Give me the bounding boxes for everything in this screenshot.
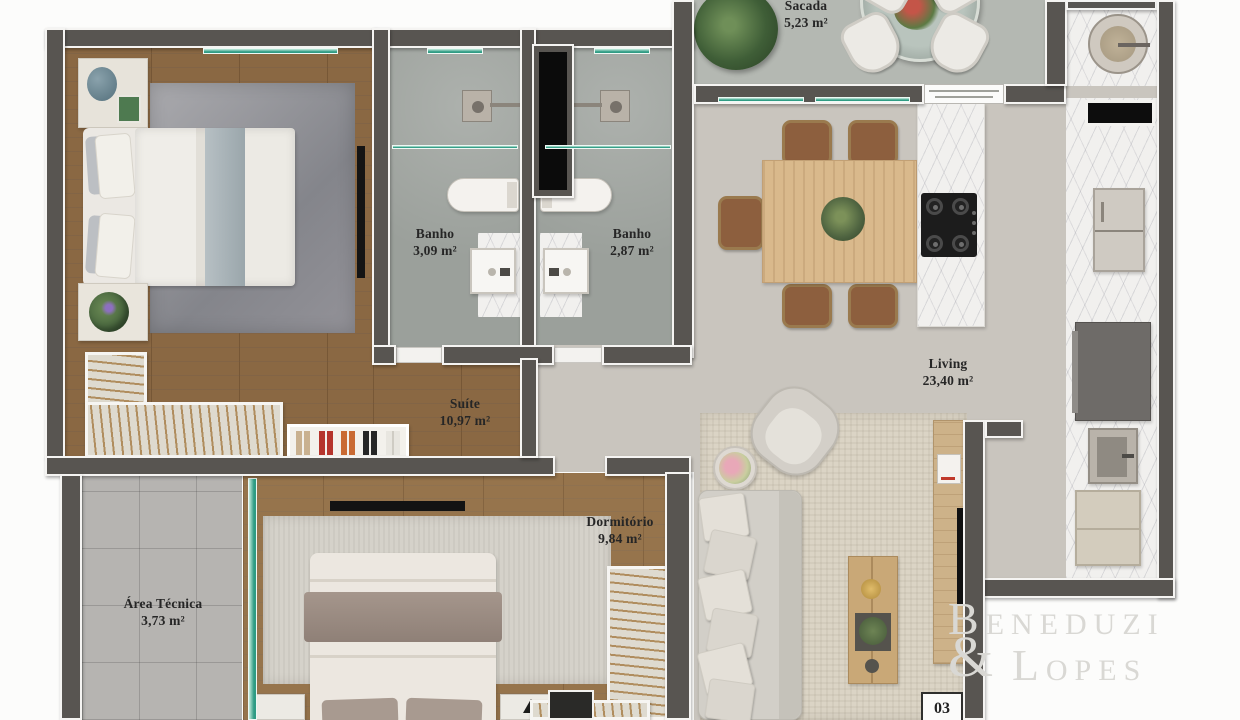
- faucet-icon: [1118, 43, 1150, 47]
- dining-chair: [718, 196, 764, 250]
- burner-icon: [952, 235, 969, 252]
- room-area: 9,84 m²: [565, 531, 675, 548]
- decor-item: [865, 659, 879, 673]
- cooktop: [921, 193, 977, 257]
- washer: [1075, 490, 1141, 566]
- room-name: Área Técnica: [124, 596, 203, 611]
- room-name: Living: [929, 356, 968, 371]
- dining-chair: [782, 284, 832, 328]
- room-name: Banho: [613, 226, 652, 241]
- pillow: [406, 698, 483, 720]
- shoes: [363, 431, 377, 455]
- wall-segment: [665, 472, 691, 720]
- room-label-sacada: Sacada 5,23 m²: [756, 0, 856, 32]
- wall-segment: [1045, 0, 1067, 86]
- closet-hangers-bottom: [85, 402, 283, 458]
- knob: [972, 231, 976, 235]
- shower-glass: [392, 145, 518, 149]
- burner-icon: [952, 198, 969, 215]
- faucet-icon: [549, 268, 559, 276]
- shaft-opening: [539, 52, 567, 190]
- suite-nightstand-bottom: [78, 283, 148, 341]
- balcony-sliding-door: [924, 84, 1004, 104]
- closet-hangers-left: [85, 352, 147, 408]
- drain: [563, 268, 571, 276]
- shower-rose: [610, 101, 622, 113]
- window-glass: [203, 48, 338, 54]
- wall-segment: [520, 358, 538, 458]
- unit-number: 03: [934, 700, 950, 717]
- plant-icon: [859, 617, 887, 645]
- shoes: [319, 431, 333, 455]
- room-label-suite: Suíte 10,97 m²: [415, 396, 515, 430]
- handle: [1101, 202, 1104, 222]
- flower-side-table: [713, 446, 757, 490]
- pillow: [322, 698, 399, 720]
- shoes: [386, 431, 400, 455]
- room-area: 23,40 m²: [898, 373, 998, 390]
- room-area: 3,09 m²: [385, 243, 485, 260]
- faucet-icon: [1122, 454, 1134, 458]
- room-label-banho1: Banho 3,09 m²: [385, 226, 485, 260]
- room-area: 3,73 m²: [102, 613, 224, 630]
- pillow: [94, 213, 135, 280]
- room-name: Banho: [416, 226, 455, 241]
- room-label-dormitorio: Dormitório 9,84 m²: [565, 514, 675, 548]
- suite-nightstand-top: [78, 58, 148, 128]
- flowers-icon: [719, 452, 751, 484]
- window-glass: [594, 48, 650, 54]
- shower-arm: [572, 103, 602, 107]
- shoes: [341, 431, 355, 455]
- fridge-handle: [1072, 331, 1078, 413]
- shower-glass: [545, 145, 671, 149]
- laundry-sink: [1088, 428, 1138, 484]
- kitchen-island: [917, 103, 985, 327]
- armchair-cushion: [757, 400, 830, 473]
- round-sink: [1088, 14, 1148, 74]
- wall-segment: [1157, 0, 1175, 598]
- door-opening: [396, 347, 442, 363]
- sofa-back: [779, 491, 801, 719]
- dining-chair: [848, 284, 898, 328]
- window-glass: [718, 97, 804, 102]
- room-area: 5,23 m²: [756, 15, 856, 32]
- shower-arm: [490, 103, 520, 107]
- wall-segment: [372, 345, 396, 365]
- knob: [972, 211, 976, 215]
- suite-tv: [357, 146, 365, 278]
- room-label-banho2: Banho 2,87 m²: [582, 226, 682, 260]
- brand-line2: & Lopes: [948, 644, 1208, 688]
- wall-segment: [672, 0, 694, 358]
- plant-tray: [855, 613, 891, 651]
- plant-icon: [821, 197, 865, 241]
- knob: [972, 221, 976, 225]
- duvet-fold: [310, 655, 496, 658]
- room-name: Suíte: [450, 396, 480, 411]
- wall-segment: [372, 28, 390, 358]
- door-line: [1077, 528, 1139, 530]
- door-split: [1095, 230, 1143, 232]
- room-area: 10,97 m²: [415, 413, 515, 430]
- shower-head: [600, 90, 630, 122]
- burner-icon: [926, 198, 943, 215]
- wall-segment: [45, 456, 555, 476]
- media-box-red-dot: [941, 477, 955, 480]
- refrigerator: [1075, 322, 1151, 421]
- bedroom-bed: [310, 553, 496, 720]
- bedroom-nightstand: [250, 694, 305, 720]
- window-glass: [815, 97, 910, 102]
- room-name: Dormitório: [586, 514, 653, 529]
- brand-logo: Beneduzi & Lopes: [948, 596, 1208, 688]
- toilet-tank: [507, 182, 517, 208]
- wall-segment: [602, 345, 692, 365]
- wall-segment: [1004, 84, 1066, 104]
- wall-segment: [45, 28, 65, 458]
- brand-word: Lopes: [1012, 644, 1147, 688]
- room-name: Sacada: [785, 0, 827, 13]
- wall-segment: [965, 578, 1175, 598]
- unit-number-badge: 03: [921, 692, 963, 720]
- room-label-living: Living 23,40 m²: [898, 356, 998, 390]
- dining-table: [762, 160, 917, 283]
- sofa: [698, 490, 802, 720]
- coffee-table: [848, 556, 898, 684]
- shower-head: [462, 90, 492, 122]
- candle-icon: [861, 579, 881, 599]
- blanket: [304, 592, 502, 642]
- wall-segment: [1066, 0, 1157, 10]
- room-label-area-tecnica: Área Técnica 3,73 m²: [102, 596, 224, 630]
- bedroom-tv: [330, 501, 465, 511]
- pillow: [94, 133, 135, 200]
- duvet-fold: [310, 579, 496, 582]
- dishwasher: [1093, 188, 1145, 272]
- door-opening: [554, 347, 602, 363]
- brand-ampersand: &: [948, 628, 1000, 686]
- flowers-icon: [101, 300, 117, 316]
- toilet: [447, 178, 519, 212]
- balcony-zone: [694, 0, 1047, 86]
- floor-plan: Sacada 5,23 m² Banho 3,09 m² Banho 2,87 …: [0, 0, 1240, 720]
- window-glass: [248, 478, 257, 720]
- room-area: 2,87 m²: [582, 243, 682, 260]
- faucet-icon: [500, 268, 510, 276]
- sofa-pillow: [704, 678, 755, 720]
- shoes: [296, 431, 310, 455]
- drain: [488, 268, 496, 276]
- burner-icon: [926, 235, 943, 252]
- suite-bed: [83, 128, 295, 286]
- kitchen-window: [1085, 100, 1155, 126]
- wall-segment: [45, 28, 378, 48]
- shower-rose: [472, 101, 484, 113]
- wall-segment: [60, 474, 82, 720]
- window-glass: [427, 48, 483, 54]
- book-icon: [117, 95, 141, 123]
- vase-icon: [87, 67, 117, 101]
- wall-segment: [985, 420, 1023, 438]
- media-box: [937, 454, 961, 484]
- throw-blanket: [205, 128, 245, 286]
- entry-threshold: [548, 690, 594, 720]
